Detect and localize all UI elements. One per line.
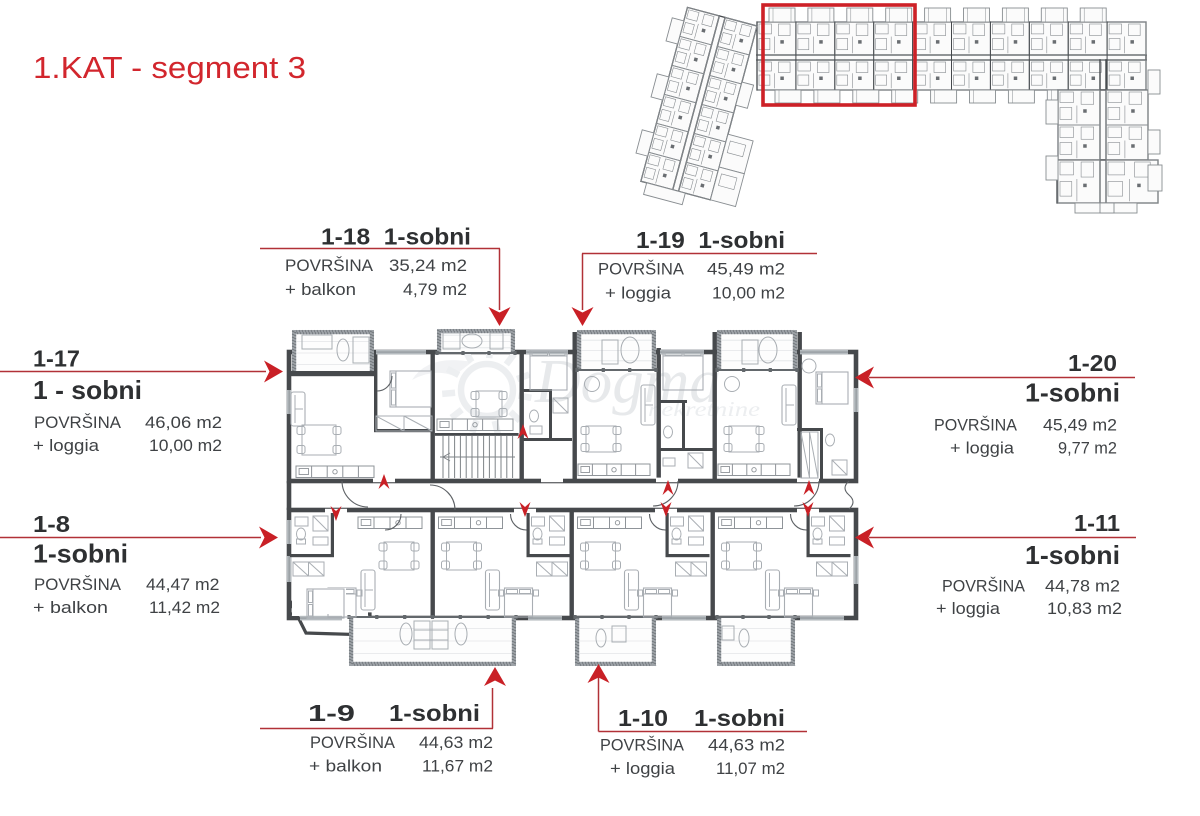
svg-text:1-sobni: 1-sobni [389,700,480,726]
svg-text:45,49 m2: 45,49 m2 [707,260,785,279]
svg-text:POVRŠINA: POVRŠINA [310,733,396,752]
svg-text:46,06 m2: 46,06 m2 [145,413,222,432]
svg-text:1-11: 1-11 [1074,510,1120,536]
svg-text:+ loggia: + loggia [610,759,676,778]
svg-text:POVRŠINA: POVRŠINA [34,575,122,594]
svg-text:1-9: 1-9 [308,700,355,726]
svg-text:1-19 1-sobni: 1-19 1-sobni [636,227,785,253]
svg-text:44,63 m2: 44,63 m2 [419,733,493,752]
svg-text:+ balkon: + balkon [309,757,382,776]
svg-text:11,07 m2: 11,07 m2 [716,759,785,778]
svg-text:1-sobni: 1-sobni [694,705,785,731]
svg-text:1.KAT - segment 3: 1.KAT - segment 3 [33,50,306,85]
svg-text:11,67 m2: 11,67 m2 [422,757,493,776]
svg-text:POVRŠINA: POVRŠINA [34,413,122,432]
svg-text:+ loggia: + loggia [33,436,100,455]
svg-text:POVRŠINA: POVRŠINA [600,736,685,755]
svg-text:1-sobni: 1-sobni [1025,378,1120,408]
svg-text:POVRŠINA: POVRŠINA [598,260,685,279]
svg-text:+ loggia: + loggia [950,439,1015,458]
svg-text:44,63 m2: 44,63 m2 [708,736,785,755]
svg-text:POVRŠINA: POVRŠINA [934,416,1018,435]
svg-text:35,24 m2: 35,24 m2 [389,256,467,275]
svg-text:10,00 m2: 10,00 m2 [712,284,785,303]
svg-text:+ loggia: + loggia [936,599,1001,618]
svg-text:10,00 m2: 10,00 m2 [149,436,222,455]
svg-text:45,49 m2: 45,49 m2 [1043,416,1117,435]
svg-text:1 - sobni: 1 - sobni [33,375,142,405]
svg-text:44,47 m2: 44,47 m2 [146,575,220,594]
svg-text:1-sobni: 1-sobni [1025,540,1120,570]
svg-text:+ balkon: + balkon [33,598,108,617]
svg-text:1-10: 1-10 [618,705,668,731]
svg-text:POVRŠINA: POVRŠINA [942,577,1026,596]
svg-text:11,42 m2: 11,42 m2 [149,598,220,617]
svg-text:1-18 1-sobni: 1-18 1-sobni [321,224,471,250]
svg-text:+ loggia: + loggia [605,284,672,303]
svg-text:1-17: 1-17 [33,346,80,372]
svg-text:1-20: 1-20 [1068,350,1117,376]
svg-text:1-sobni: 1-sobni [33,539,128,569]
svg-text:POVRŠINA: POVRŠINA [285,256,374,275]
svg-text:44,78 m2: 44,78 m2 [1045,577,1120,596]
svg-text:4,79 m2: 4,79 m2 [403,280,467,299]
svg-text:9,77 m2: 9,77 m2 [1058,439,1117,458]
svg-text:1-8: 1-8 [33,511,70,537]
svg-text:10,83 m2: 10,83 m2 [1047,599,1122,618]
svg-text:+ balkon: + balkon [285,280,356,299]
